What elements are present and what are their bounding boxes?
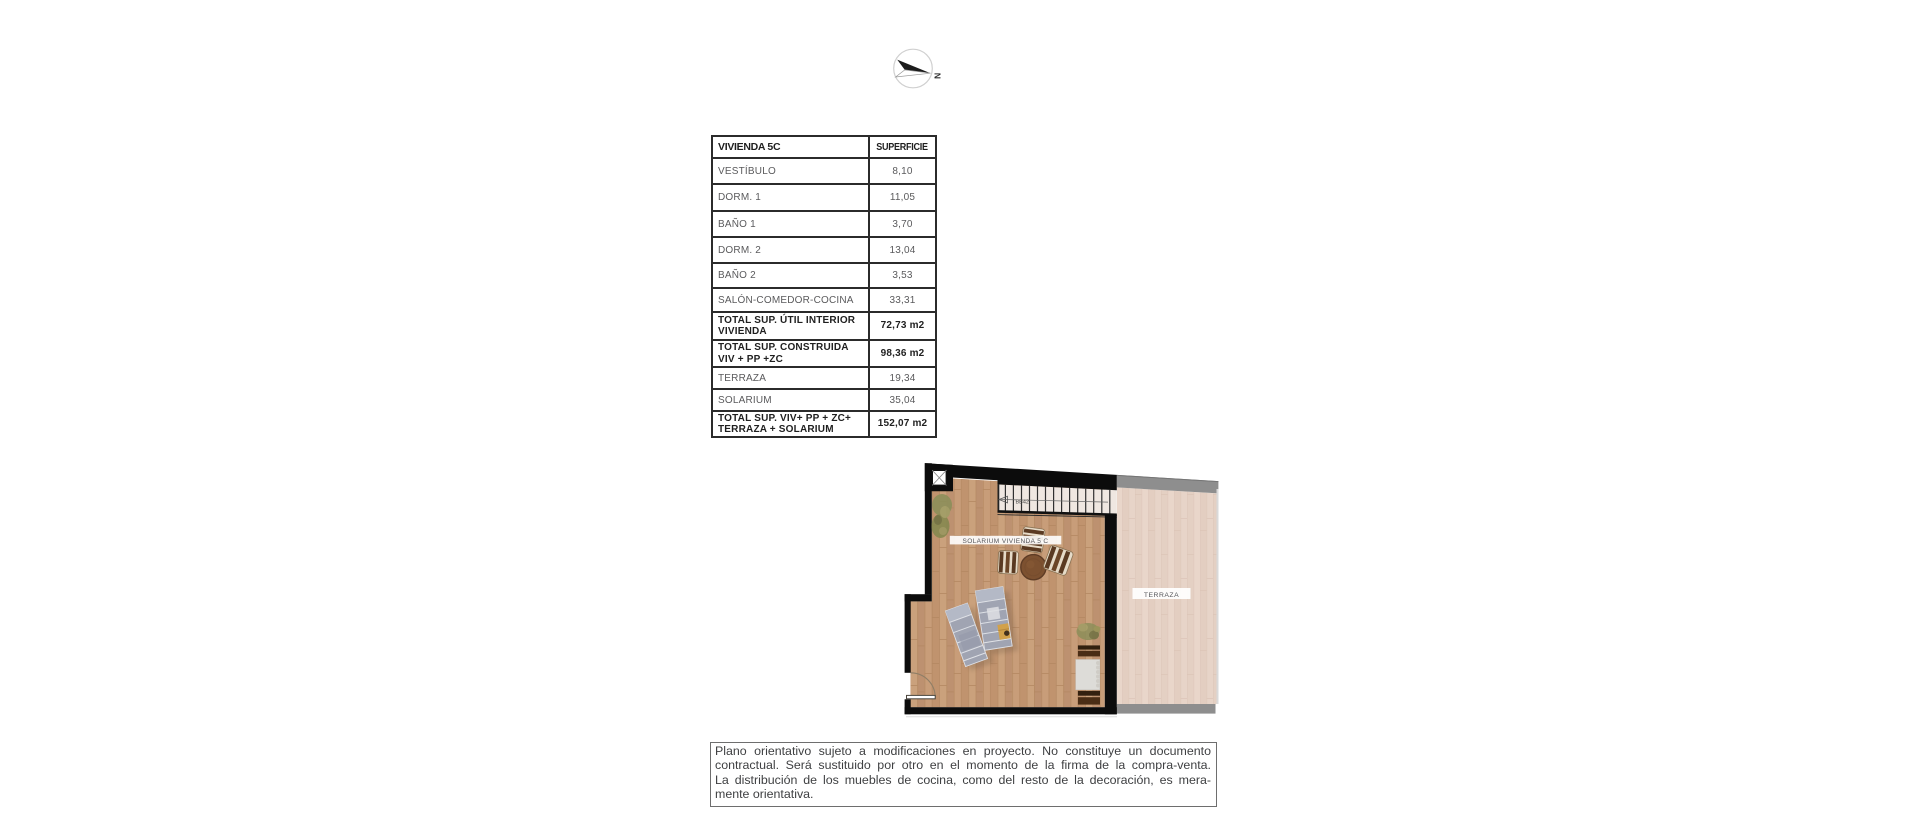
svg-text:N: N [932, 73, 942, 79]
svg-text:SOLARIUM VIVIENDA 5 C: SOLARIUM VIVIENDA 5 C [962, 538, 1048, 545]
svg-text:TERRAZA: TERRAZA [1144, 592, 1179, 599]
svg-text:BB42: BB42 [1016, 500, 1029, 506]
